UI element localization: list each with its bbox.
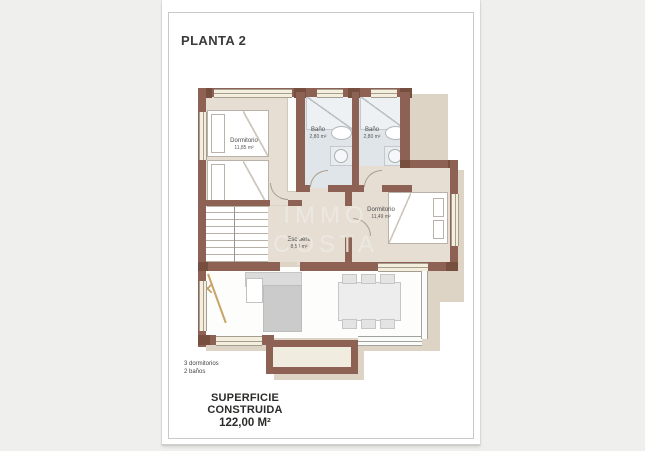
wall-baths-bottom-c <box>382 185 412 192</box>
dining-chair <box>361 274 376 284</box>
wall-corner <box>198 335 210 345</box>
watermark-line1: IMMO <box>270 201 382 230</box>
bath2-label: Baño 2,80 m² <box>357 127 387 141</box>
bedroom1-window-left <box>199 112 207 160</box>
built-area-value: 122,00 M² <box>178 417 312 429</box>
room-area: 2,80 m² <box>357 134 387 141</box>
pillow <box>433 220 444 239</box>
pillow <box>211 164 225 203</box>
room-name: Dormitorio <box>215 138 273 145</box>
wall-bedroom1-bath1 <box>296 92 305 190</box>
living-window-bottom <box>216 336 262 346</box>
dining-chair <box>380 274 395 284</box>
bath1-sink <box>334 149 348 163</box>
living-sliding-window <box>358 336 422 346</box>
summary-bathrooms: 2 baños <box>184 368 219 376</box>
dining-table <box>338 282 401 321</box>
pillow <box>433 198 444 217</box>
wall-baths-bottom-a <box>296 185 310 192</box>
room-area: 2,80 m² <box>303 134 333 141</box>
bedroom2-window <box>451 194 459 246</box>
wall-mid-a <box>198 262 280 271</box>
wall-corner <box>400 160 410 168</box>
wall-bedroom1-bottom-a <box>198 200 270 206</box>
room-area: 11,85 m² <box>215 145 273 152</box>
kitchen-island <box>263 285 302 332</box>
built-area-block: SUPERFICIE CONSTRUIDA 122,00 M² <box>178 392 312 429</box>
living-window-left <box>199 281 207 331</box>
dining-chair <box>380 319 395 329</box>
bath1-window <box>317 89 343 98</box>
wall-bath-divider <box>352 92 359 190</box>
bath2-window <box>371 89 397 98</box>
wall-corner <box>198 262 208 271</box>
bath1-toilet <box>331 126 352 140</box>
wall-baths-bottom-b <box>328 185 364 192</box>
balcony <box>266 340 358 374</box>
bath1-label: Baño 2,80 m² <box>303 127 333 141</box>
room-name: Baño <box>303 127 333 134</box>
room-name: Baño <box>357 127 387 134</box>
living-glass-corner-wall <box>421 271 428 339</box>
dining-chair <box>342 319 357 329</box>
wall-corner <box>446 262 458 271</box>
dining-chair <box>361 319 376 329</box>
watermark-line2: COSTA <box>270 230 382 259</box>
dining-chair <box>342 274 357 284</box>
watermark: IMMO COSTA <box>270 201 382 259</box>
summary-bedrooms: 3 dormitorios <box>184 360 219 368</box>
staircase-divider <box>234 206 235 262</box>
page-title: PLANTA 2 <box>181 33 246 48</box>
bedroom1-label: Dormitorio 11,85 m² <box>215 138 273 152</box>
bedroom1-window-top <box>214 89 292 98</box>
kitchen-appliance <box>246 278 263 303</box>
rooms-summary: 3 dormitorios 2 baños <box>184 360 219 376</box>
wall-bath2-right <box>400 92 410 168</box>
staircase <box>203 206 268 262</box>
bath1-shower <box>306 96 353 130</box>
built-area-label: SUPERFICIE CONSTRUIDA <box>178 392 312 416</box>
